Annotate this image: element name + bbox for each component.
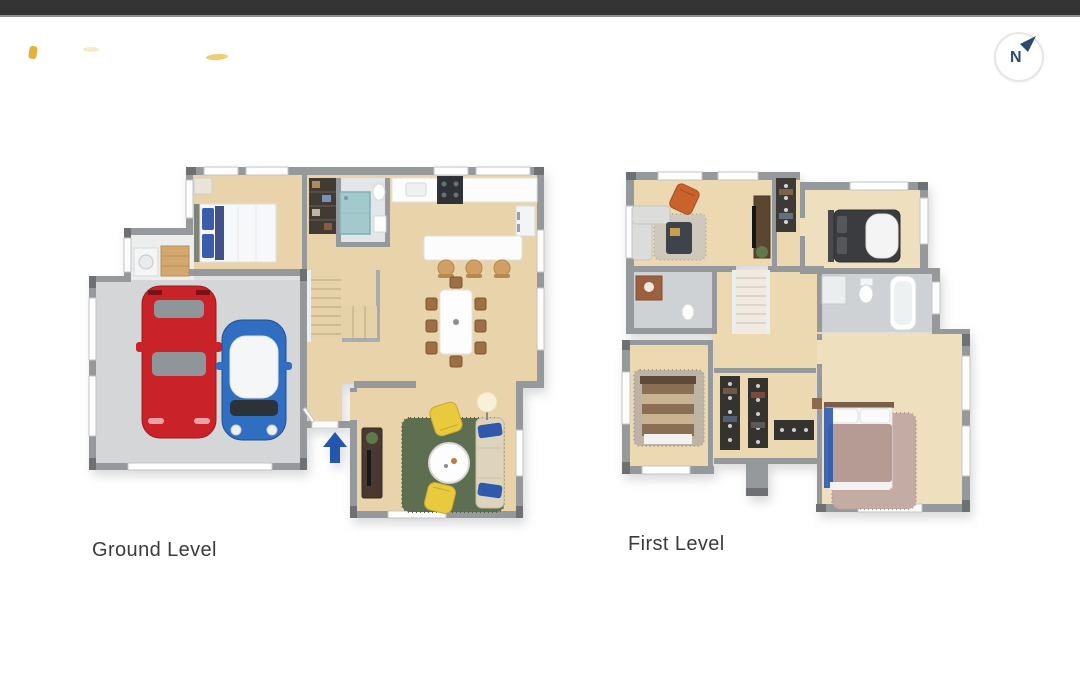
clothes-rack [748,378,768,448]
toilet [682,304,694,320]
compass-arrow-icon [1017,35,1039,57]
blue-runner [824,408,833,488]
tv [752,206,756,248]
kitchen-island [424,236,522,278]
bar-stool [494,260,510,276]
dark-coffee-table [666,222,692,254]
compass: N [994,32,1044,82]
ground-laundry [134,246,189,276]
toilet [373,184,385,200]
toilet [859,278,873,303]
pillow [860,409,890,423]
striped-bed [640,376,696,444]
plant [756,246,768,258]
entry-arrow-icon [323,432,347,463]
first-level-label: First Level [628,533,725,556]
bar-stool [438,260,454,276]
nightstand [812,398,822,409]
watermark-fragment [28,46,38,60]
beige-sofa [476,418,504,508]
hall-wardrobe [309,178,336,234]
clothes-rack [774,420,814,440]
plant [366,432,378,444]
shower [822,276,846,304]
fridge [516,206,535,236]
wardrobe [776,178,796,232]
bathtub [890,276,916,330]
kitchen-sink [406,183,426,196]
entry-door-opening [312,421,338,428]
stove [437,176,463,204]
nightstand [194,178,212,194]
watermark-fragment [206,53,228,61]
first-stairs [732,270,770,334]
garage-door-opening [128,463,272,470]
dark-double-bed [828,210,900,262]
ground-level-label: Ground Level [92,539,217,562]
floor-plan-page: N [0,0,1080,693]
bar-stool [466,260,482,276]
round-coffee-table [429,443,469,483]
bedroom-3 [634,370,704,446]
blue-car [216,320,292,440]
master-bed [824,402,894,490]
tv-sideboard [362,428,382,498]
bedroom-2 [828,210,900,262]
first-level-floor-plan [618,166,978,541]
double-bed [194,204,276,262]
sink [374,216,386,232]
laundry-cabinet [161,246,189,276]
top-bar [0,0,1080,17]
watermark-fragment [83,47,99,52]
ground-level-floor-plan [88,166,548,538]
tv-console [752,196,770,258]
red-car [136,286,222,438]
clothes-rack [720,376,740,450]
